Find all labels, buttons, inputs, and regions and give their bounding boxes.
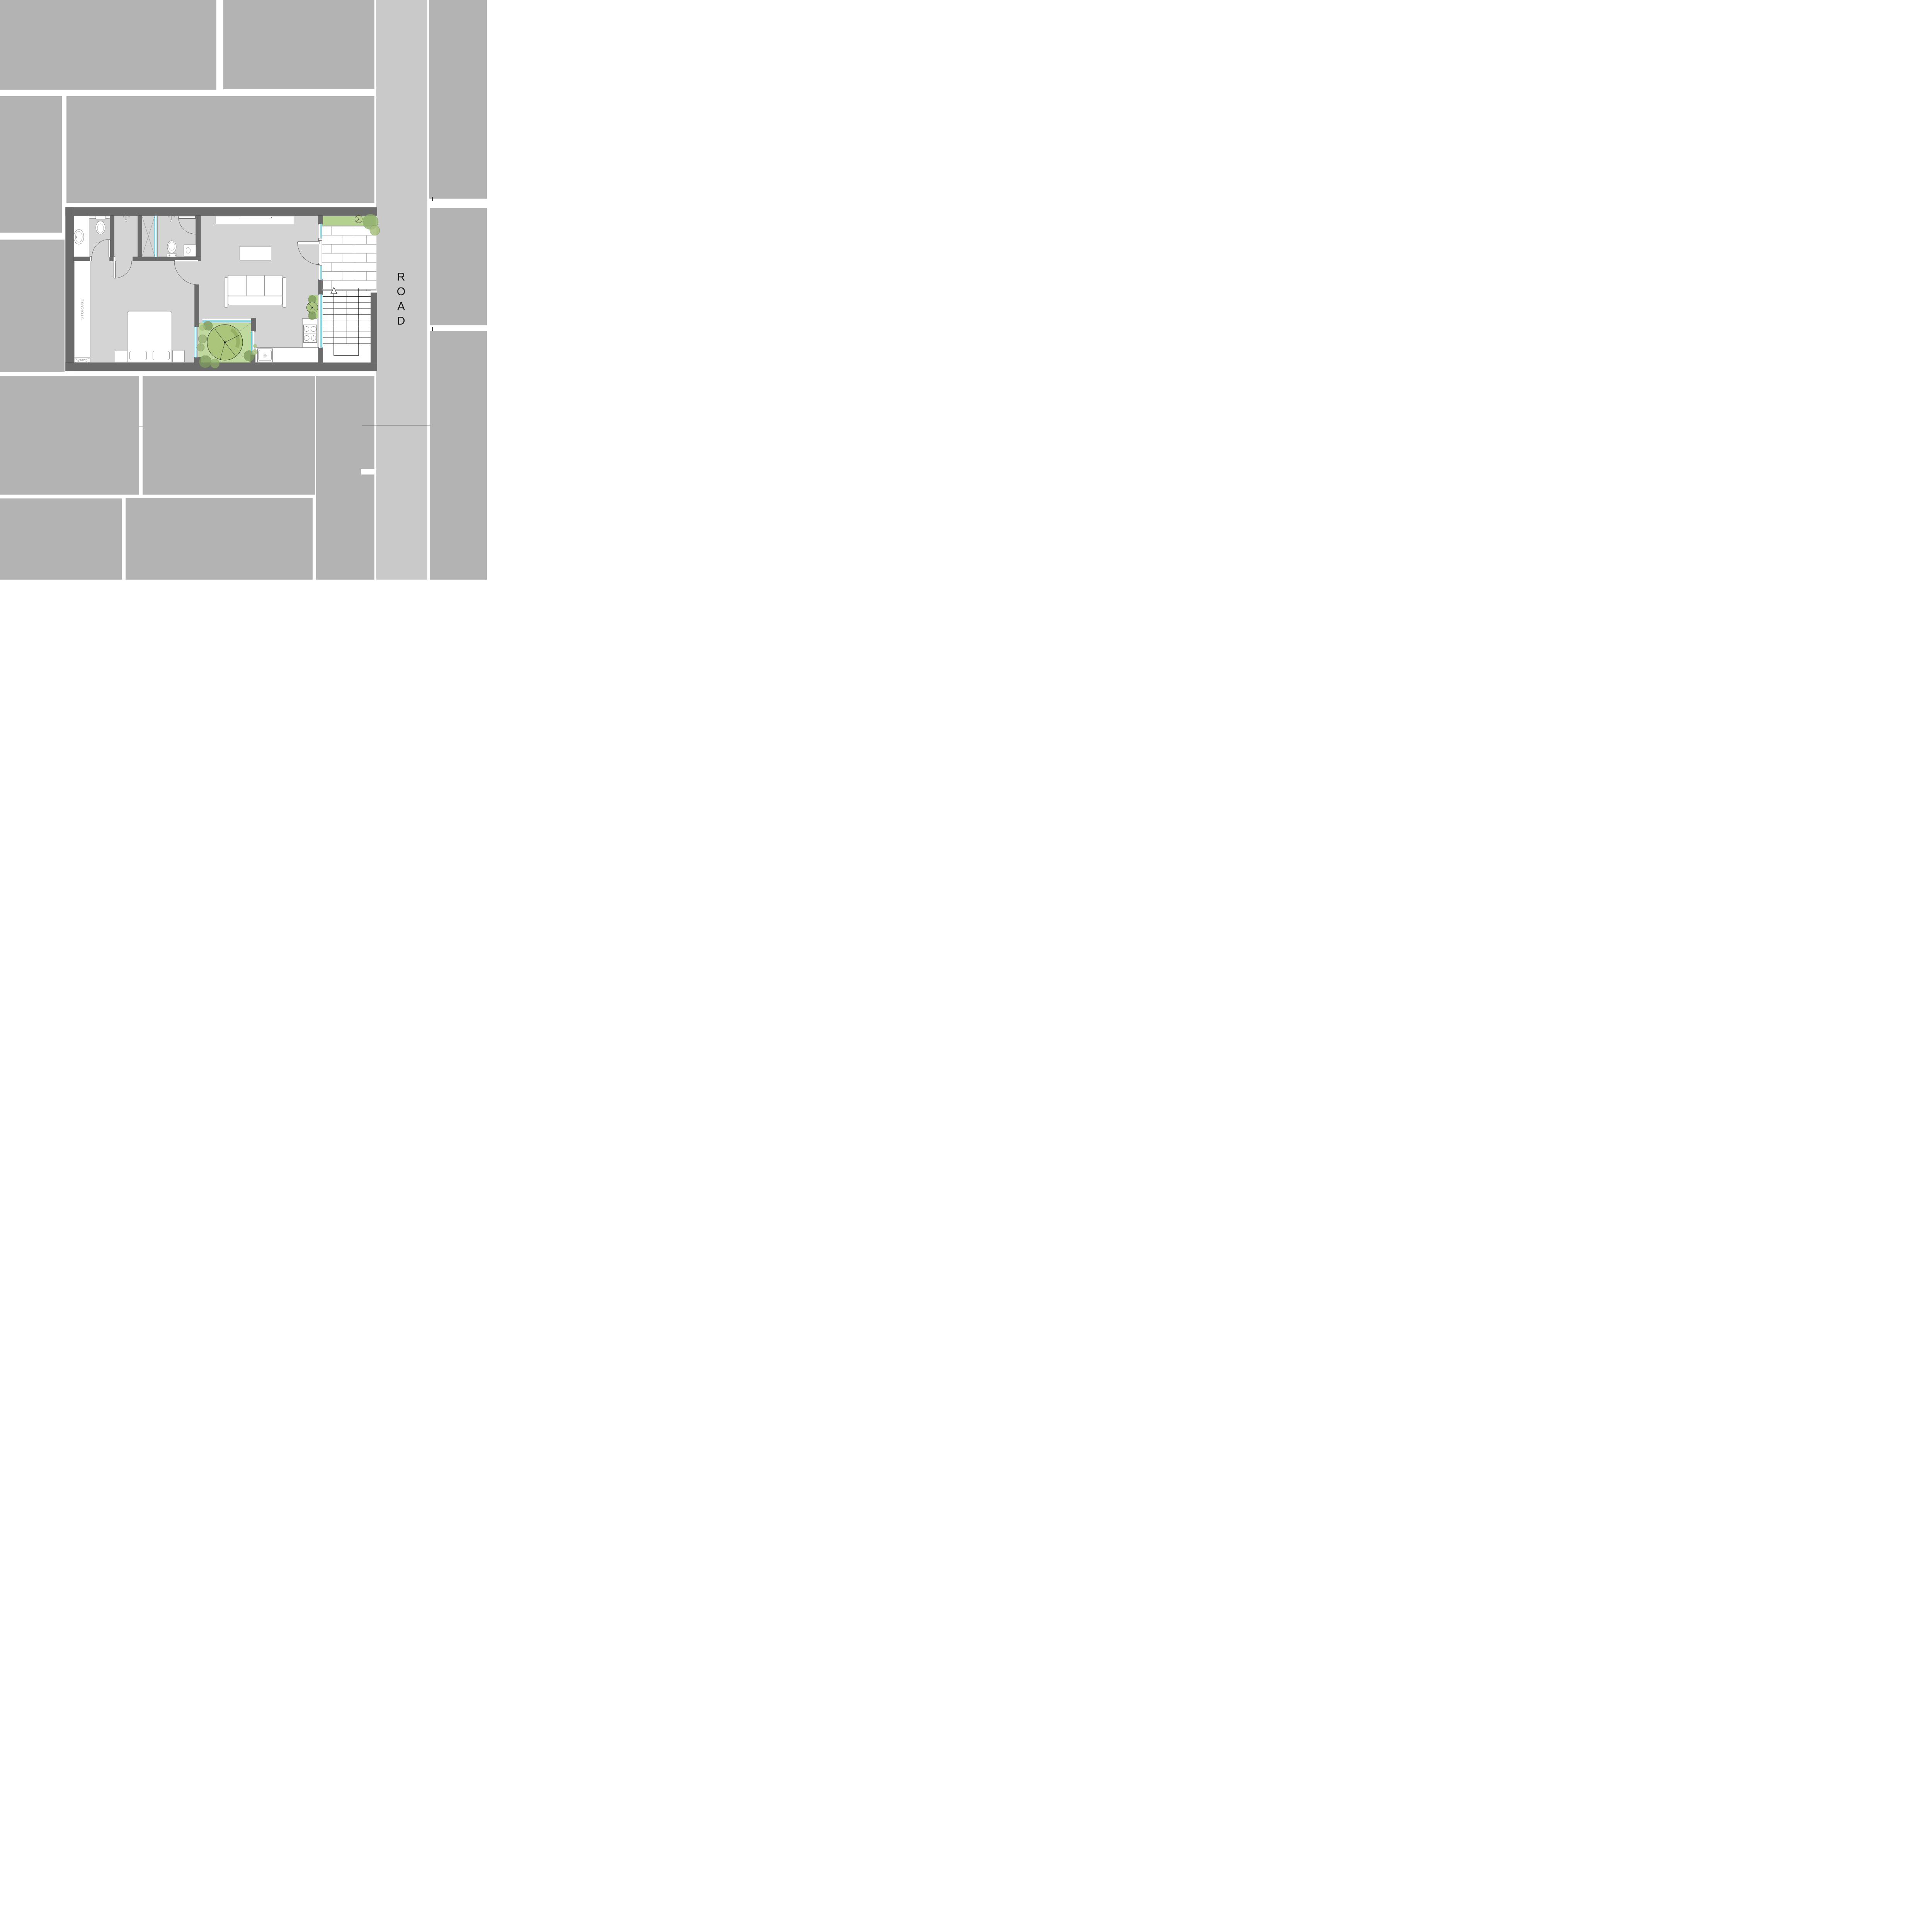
- road-label: R O A D: [389, 270, 413, 328]
- coffee-table: [240, 246, 271, 260]
- bedroom-door-leaf: [174, 260, 198, 262]
- road-letter: D: [389, 314, 413, 328]
- entry-door-leaf: [298, 241, 320, 244]
- plot-boundary-line: [139, 427, 143, 427]
- neighbor-block: [0, 0, 216, 90]
- stove: [303, 325, 317, 343]
- wall-shower-shaft: [138, 216, 142, 257]
- wall-bedroom-east: [195, 285, 199, 327]
- wall-kitchen-east: [318, 348, 323, 363]
- entry-patio: [322, 226, 376, 291]
- entry-planting-strip: [322, 216, 376, 226]
- tv: [239, 217, 272, 218]
- neighbor-block: [429, 0, 487, 199]
- sofa-armrest-right: [282, 277, 286, 308]
- wall-bath1-shower: [110, 216, 114, 257]
- neighbor-block: [0, 96, 62, 233]
- window-courtyard-west: [195, 327, 198, 357]
- neighbor-block: [223, 0, 374, 89]
- neighbor-block: [430, 331, 487, 580]
- road-letter: A: [389, 299, 413, 314]
- pillow-left: [129, 351, 147, 360]
- kitchen-sink-bowl: [259, 350, 272, 361]
- bathroom1-floor: [74, 216, 89, 257]
- plot-boundary-tick: [432, 197, 433, 201]
- wall-exterior-left: [66, 207, 74, 371]
- wall-courtyard-se: [251, 355, 255, 363]
- pillow-right: [153, 351, 170, 360]
- neighbor-block: [316, 376, 374, 580]
- courtyard-lawn: [199, 323, 251, 363]
- site-plan-canvas: STORAGE AC SHAFT: [0, 0, 487, 580]
- window-courtyard-north: [202, 319, 251, 322]
- sofa-armrest-left: [224, 277, 228, 308]
- kitchen-planter: [309, 295, 318, 318]
- bathroom1-shelf: [89, 216, 110, 219]
- entry-door-jamb: [318, 263, 322, 265]
- wall-courtyard-sw: [194, 357, 201, 363]
- neighbor-block: [430, 208, 487, 325]
- wall-living-east: [318, 216, 323, 224]
- ac-shaft-box: AC SHAFT: [74, 358, 90, 363]
- glass-shaft-partition: [155, 216, 158, 257]
- nightstand-right: [172, 350, 185, 362]
- window-courtyard-east: [251, 331, 254, 355]
- sofa-seat-divider: [264, 276, 265, 296]
- wall-courtyard-ne: [251, 318, 256, 331]
- wall-bath2-east: [196, 216, 201, 257]
- sofa-backrest: [228, 296, 282, 305]
- shower-door-leaf: [114, 261, 116, 278]
- sofa-seats: [228, 275, 282, 296]
- road-letter: R: [389, 270, 413, 284]
- bath2-door-leaf: [179, 216, 196, 219]
- neighbor-block: [0, 240, 65, 372]
- wall-exterior-bottom: [66, 363, 377, 371]
- entry-door-jamb: [318, 238, 322, 241]
- ac-shaft-label: AC SHAFT: [75, 359, 90, 361]
- storage-label: STORAGE: [75, 261, 90, 357]
- neighbor-block: [126, 498, 313, 580]
- sofa-seat-divider: [246, 276, 247, 296]
- block-gap: [361, 469, 374, 474]
- door-jamb: [90, 256, 92, 261]
- glass-kitchen-stair: [319, 294, 322, 348]
- wall-living-east: [318, 280, 323, 294]
- neighbor-block: [143, 376, 315, 495]
- wall-exterior-top: [66, 207, 377, 216]
- road-letter: O: [389, 284, 413, 299]
- stair-flight-divider: [347, 291, 347, 344]
- plot-boundary-tick: [432, 327, 433, 331]
- bed-headboard: [127, 360, 172, 362]
- wall-exterior-stair-right: [371, 293, 377, 363]
- wall-bedroom-north: [74, 257, 91, 261]
- plot-boundary-line: [362, 425, 430, 425]
- storage-area: STORAGE: [74, 260, 90, 358]
- neighbor-block: [66, 96, 374, 203]
- nightstand-left: [115, 350, 127, 362]
- window-living-east-lower: [319, 264, 322, 280]
- neighbor-block: [0, 376, 139, 495]
- neighbor-block: [0, 498, 122, 580]
- bath1-door-leaf: [109, 240, 111, 257]
